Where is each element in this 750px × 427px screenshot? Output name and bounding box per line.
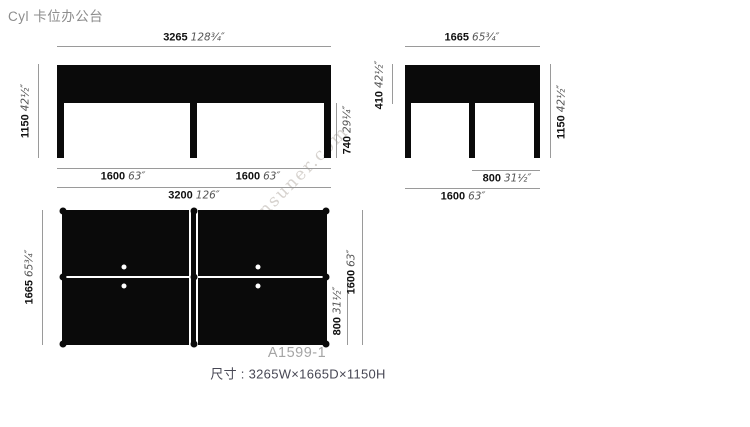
dim-front-bay-left: 160063″	[101, 172, 146, 183]
desk-leg	[469, 103, 475, 158]
size-note: 尺寸 : 3265W×1665D×1150H	[210, 364, 385, 383]
connector-dot	[191, 208, 198, 215]
dim-value-inch: 31½″	[504, 173, 531, 185]
dim-plan-depth: 166565¾″	[25, 250, 36, 305]
dim-value-inch: 63″	[468, 191, 485, 203]
dim-side-overall-height: 115042½″	[557, 85, 568, 139]
grommet-hole	[256, 284, 261, 289]
dim-side-half-depth: 80031½″	[483, 174, 532, 185]
grommet-hole	[122, 284, 127, 289]
dim-side-frame-depth: 160063″	[441, 192, 486, 203]
dimension-line	[38, 64, 39, 158]
dim-value-inch: 65¾″	[24, 250, 36, 277]
desk-screen-panel-side	[405, 65, 540, 103]
dim-front-desk-height: 74029¼″	[343, 106, 354, 155]
dim-value-inch: 63″	[128, 171, 145, 183]
dim-value-inch: 65¾″	[472, 32, 499, 44]
dim-front-overall-height: 115042½″	[21, 84, 32, 138]
dim-value-inch: 126″	[196, 190, 220, 202]
dimension-line	[405, 188, 540, 189]
drawing-canvas: Cyl 卡位办公台 snsuner.com 3265128¾″ 115042½″…	[0, 0, 750, 427]
page-title: Cyl 卡位办公台	[8, 5, 103, 25]
dimension-line	[42, 210, 43, 345]
dimension-line	[472, 170, 540, 171]
dimension-line	[550, 64, 551, 158]
connector-dot	[323, 274, 330, 281]
dimension-line	[392, 64, 393, 104]
dim-value-mm: 3265	[163, 32, 187, 44]
connector-dot	[60, 274, 67, 281]
dim-side-depth: 166565¾″	[445, 33, 500, 44]
dim-value-mm: 1600	[101, 171, 125, 183]
dim-value-mm: 1150	[556, 115, 568, 139]
dim-value-inch: 31½″	[332, 287, 344, 314]
dim-front-frame-width: 3200126″	[168, 191, 219, 202]
dimension-line	[57, 187, 331, 188]
desk-leg	[405, 103, 411, 158]
dim-front-bay-right: 160063″	[236, 172, 281, 183]
dim-value-inch: 128¾″	[191, 32, 225, 44]
desk-leg	[57, 103, 64, 158]
dim-value-mm: 800	[483, 173, 501, 185]
dim-value-inch: 42½″	[374, 61, 386, 88]
dim-value-mm: 1665	[445, 32, 469, 44]
dim-value-mm: 3200	[168, 190, 192, 202]
dimension-line	[405, 46, 540, 47]
desk-screen-panel-front	[57, 65, 331, 103]
dim-value-mm: 1600	[346, 270, 358, 294]
grommet-hole	[256, 265, 261, 270]
dim-value-mm: 1600	[441, 191, 465, 203]
connector-dot	[191, 341, 198, 348]
dim-side-screen-height: 41042½″	[375, 61, 386, 110]
dim-value-inch: 29¼″	[342, 106, 354, 133]
desk-leg	[190, 103, 197, 158]
dimension-line	[336, 103, 337, 158]
desk-leg	[324, 103, 331, 158]
dim-value-mm: 800	[332, 317, 344, 335]
dim-value-inch: 42½″	[556, 85, 568, 112]
dim-value-inch: 63″	[263, 171, 280, 183]
dim-value-mm: 410	[374, 91, 386, 109]
dim-value-mm: 740	[342, 136, 354, 154]
dim-value-mm: 1150	[20, 114, 32, 138]
desk-leg	[534, 103, 540, 158]
dim-front-width: 3265128¾″	[163, 33, 225, 44]
connector-dot	[323, 208, 330, 215]
dim-plan-frame-depth: 160063″	[347, 250, 358, 295]
connector-dot	[60, 341, 67, 348]
grommet-hole	[122, 265, 127, 270]
dimension-line	[57, 168, 331, 169]
dim-value-mm: 1600	[236, 171, 260, 183]
dim-value-inch: 42½″	[20, 84, 32, 111]
dimension-line	[57, 46, 331, 47]
connector-dot	[60, 208, 67, 215]
connector-dot	[191, 274, 198, 281]
dim-value-mm: 1665	[24, 280, 36, 304]
dim-plan-half-depth: 80031½″	[333, 287, 344, 336]
dim-value-inch: 63″	[346, 250, 358, 267]
product-code: A1599-1	[268, 345, 326, 361]
dimension-line	[362, 210, 363, 345]
